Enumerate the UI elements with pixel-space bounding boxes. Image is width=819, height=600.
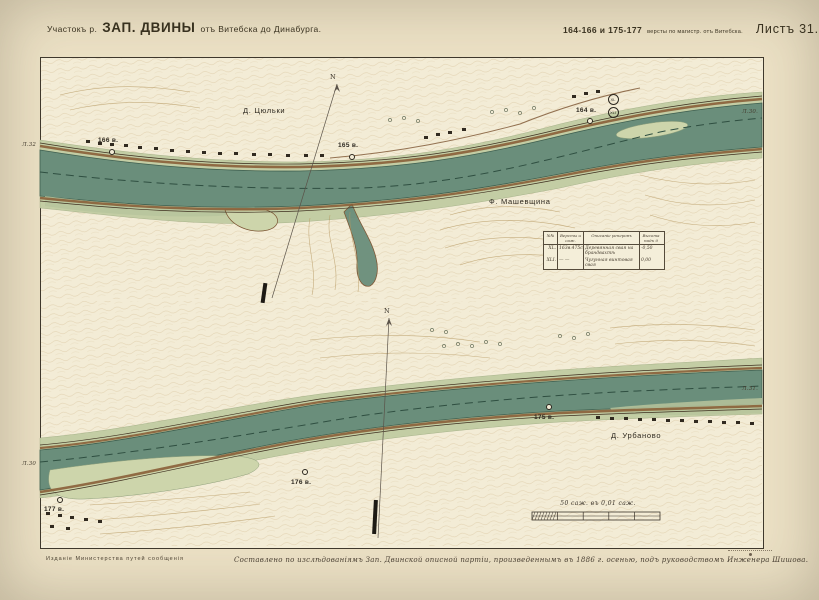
bm-header-desc: Описаніе реперовъ: [584, 232, 640, 244]
bm-header-verst: Версты и саж.: [558, 232, 584, 244]
bm-row0-desc: Деревянная свая на брандвахтѣ: [584, 245, 640, 257]
survey-credit: Составлено по изслѣдованіямъ Зап. Двинск…: [234, 556, 808, 564]
map-artwork: [0, 0, 819, 600]
bm-header-height: Высота надъ 0: [640, 232, 662, 244]
bm-row1-verst: — —: [558, 257, 584, 269]
bm-row0-num: XL.: [544, 245, 558, 257]
bm-row0-verst: 163в.475с.: [558, 245, 584, 257]
map-sheet: Участокъ р. ЗАП. ДВИНЫ отъ Витебска до Д…: [0, 0, 819, 600]
bm-header-num: №№: [544, 232, 558, 244]
printer-imprint: [728, 550, 772, 556]
bm-row1-desc: Чугунная винтовая свая: [584, 257, 640, 269]
bm-row1-height: 0,00: [640, 257, 662, 269]
bm-row0-height: -0,50: [640, 245, 662, 257]
benchmark-table-header: №№ Версты и саж. Описаніе реперовъ Высот…: [544, 232, 664, 245]
benchmark-row: XLI. — — Чугунная винтовая свая 0,00: [544, 257, 664, 269]
scale-bar-graphic: [528, 510, 668, 524]
scale-bar: 50 саж. въ 0,01 саж.: [528, 500, 668, 529]
scale-bar-caption: 50 саж. въ 0,01 саж.: [528, 500, 668, 507]
benchmark-table: №№ Версты и саж. Описаніе реперовъ Высот…: [543, 231, 665, 270]
bm-row1-num: XLI.: [544, 257, 558, 269]
benchmark-row: XL. 163в.475с. Деревянная свая на брандв…: [544, 245, 664, 257]
publisher-imprint: Изданіе Министерства путей сообщенія: [46, 556, 184, 562]
